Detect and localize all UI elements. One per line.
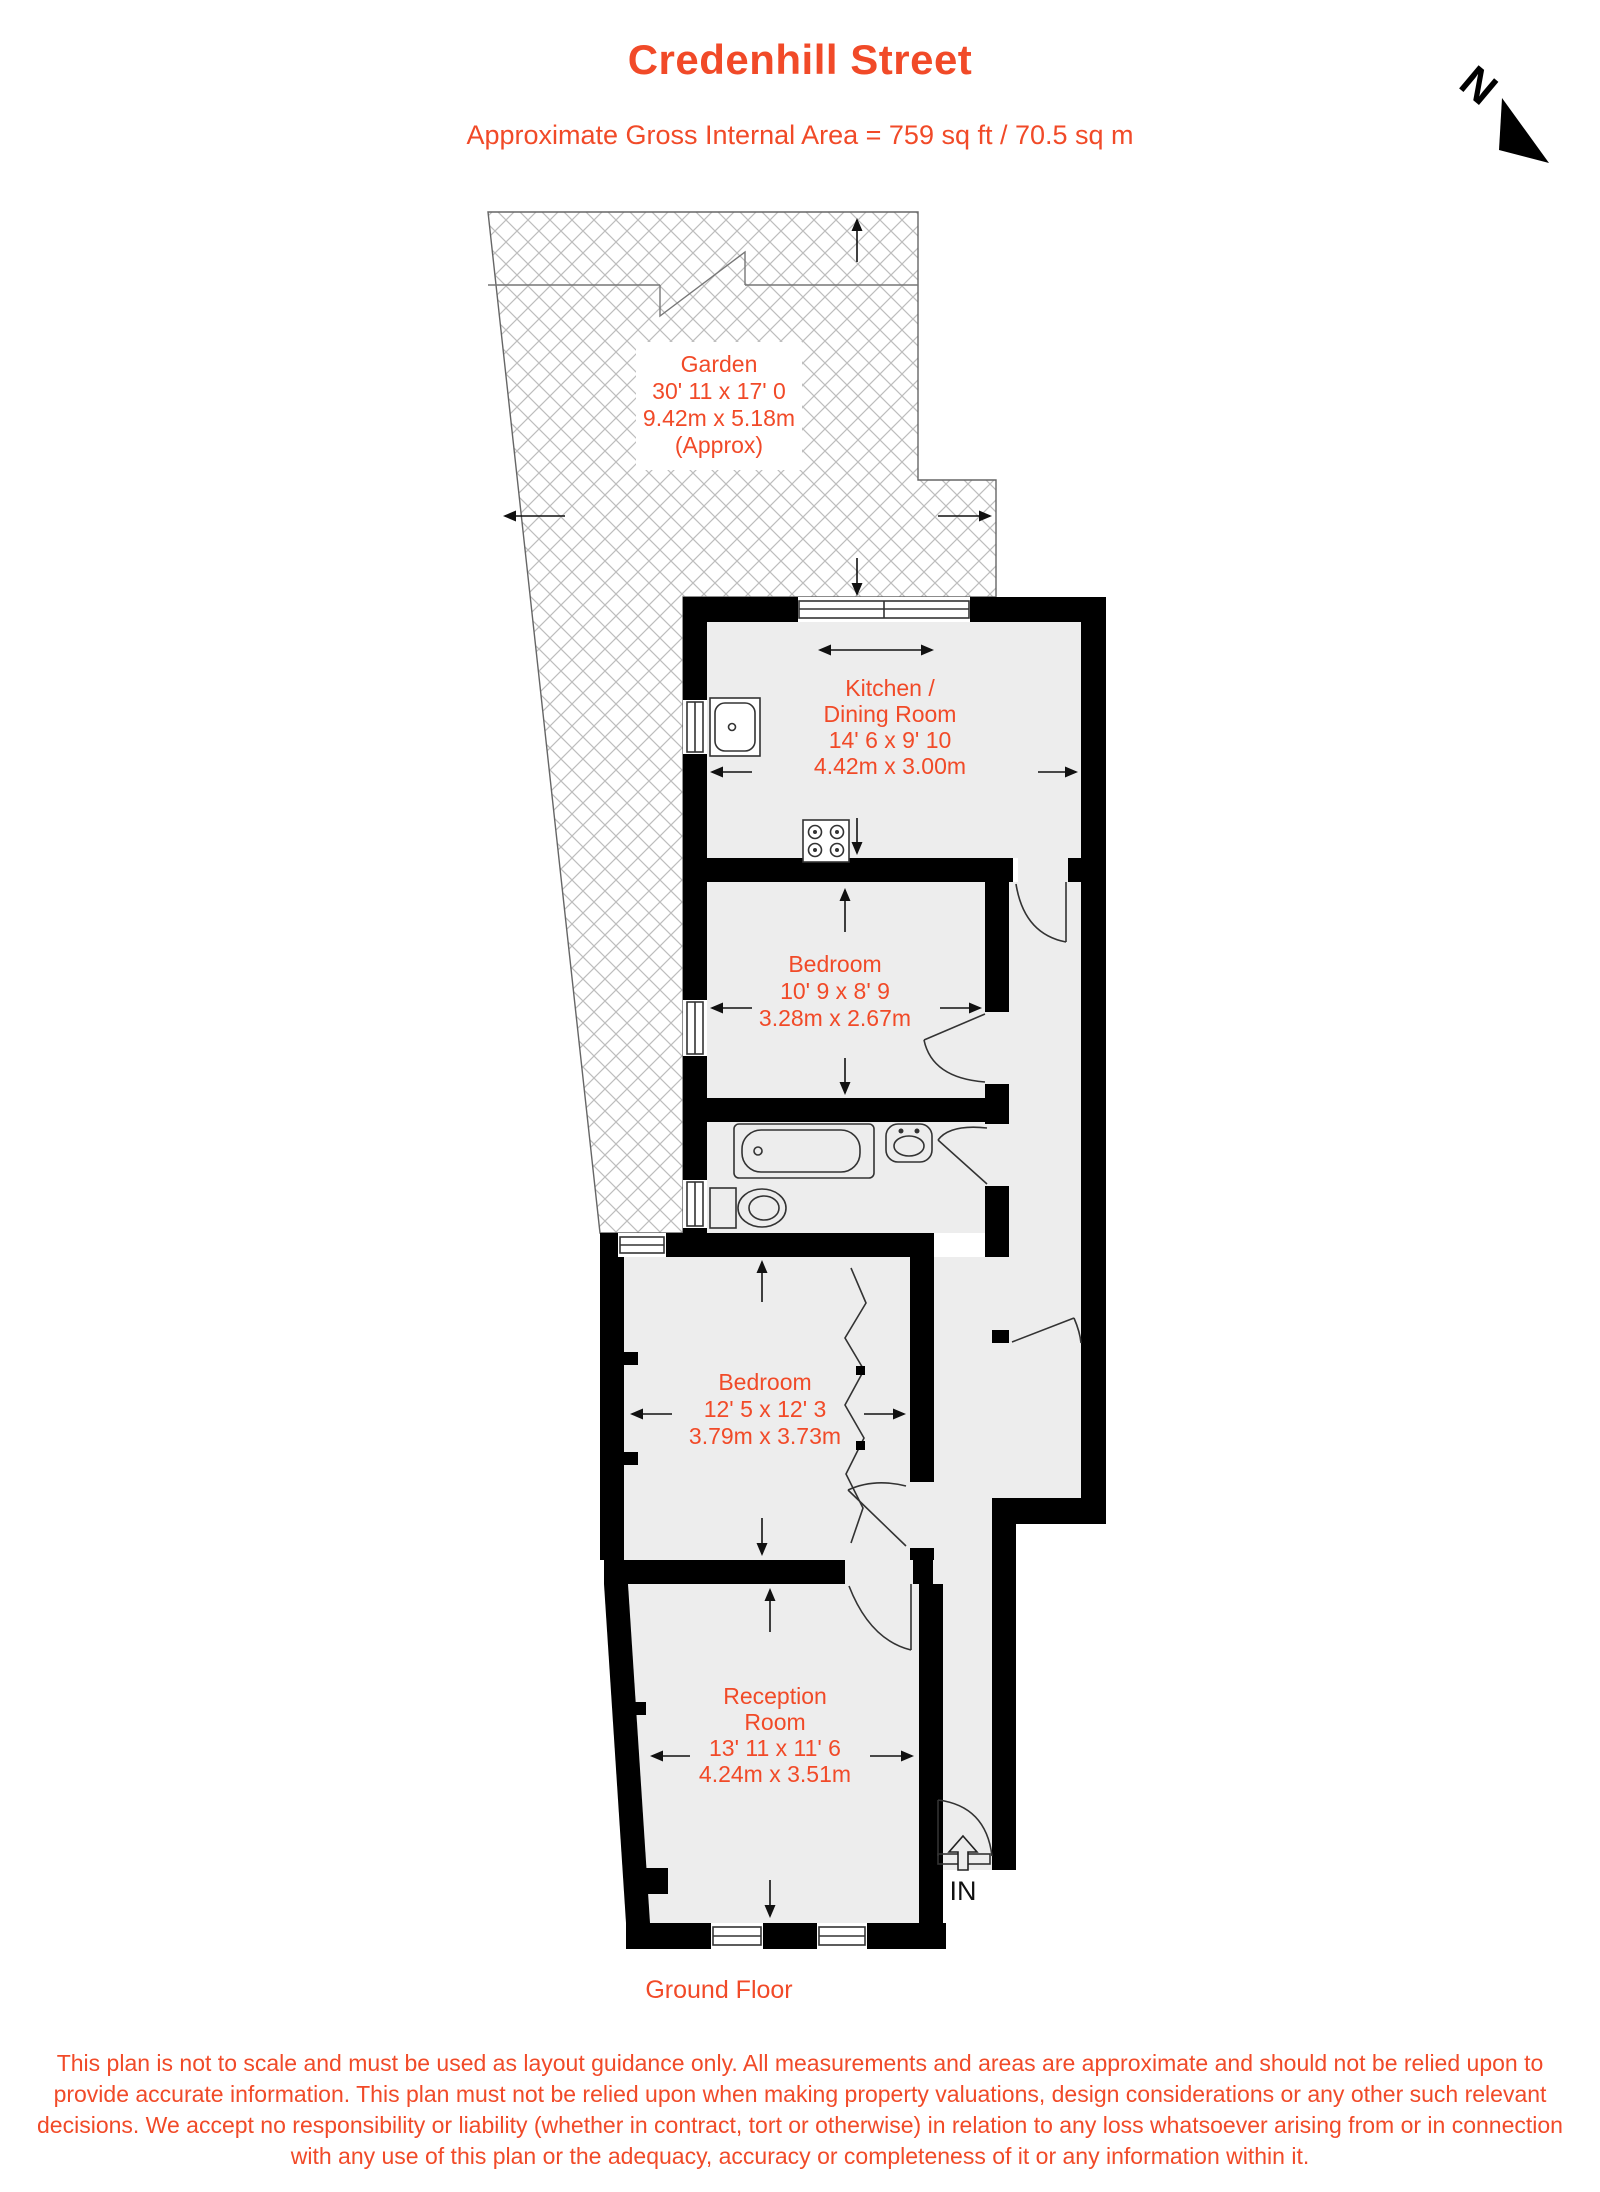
bedroom2-label: Bedroom bbox=[718, 1369, 811, 1395]
kitchen-label-2: Dining Room bbox=[824, 701, 957, 727]
reception-label-1: Reception bbox=[723, 1683, 827, 1709]
kitchen-dims-imperial: 14' 6 x 9' 10 bbox=[829, 727, 952, 753]
garden-dims-metric: 9.42m x 5.18m bbox=[643, 405, 795, 431]
entrance-marker: IN bbox=[949, 1836, 977, 1906]
disclaimer-text: This plan is not to scale and must be us… bbox=[30, 2048, 1570, 2172]
toilet-icon bbox=[710, 1188, 786, 1228]
bedroom1-dims-metric: 3.28m x 2.67m bbox=[759, 1005, 911, 1031]
garden-note: (Approx) bbox=[675, 432, 763, 458]
garden-dims-imperial: 30' 11 x 17' 0 bbox=[652, 378, 786, 404]
reception-label-2: Room bbox=[744, 1709, 805, 1735]
north-label: N bbox=[1450, 57, 1506, 115]
basin-icon bbox=[886, 1124, 932, 1162]
bedroom1-label: Bedroom bbox=[788, 951, 881, 977]
bedroom2-dims-metric: 3.79m x 3.73m bbox=[689, 1423, 841, 1449]
bedroom2-dims-imperial: 12' 5 x 12' 3 bbox=[704, 1396, 827, 1422]
kitchen-sink-icon bbox=[710, 698, 760, 756]
entrance-label: IN bbox=[950, 1876, 977, 1906]
kitchen-dims-metric: 4.42m x 3.00m bbox=[814, 753, 966, 779]
kitchen-label-1: Kitchen / bbox=[845, 675, 935, 701]
floor-label: Ground Floor bbox=[645, 1976, 792, 2004]
bathtub-icon bbox=[734, 1124, 874, 1178]
bedroom1-dims-imperial: 10' 9 x 8' 9 bbox=[780, 978, 890, 1004]
reception-dims-metric: 4.24m x 3.51m bbox=[699, 1761, 851, 1787]
floor-plan: N IN Garden 30' 11 x 17' 0 9.42m x 5.18m… bbox=[0, 0, 1600, 2192]
reception-dims-imperial: 13' 11 x 11' 6 bbox=[709, 1735, 841, 1761]
north-arrow-icon: N bbox=[1450, 57, 1549, 163]
hob-icon bbox=[803, 820, 849, 862]
garden-label: Garden bbox=[681, 351, 758, 377]
